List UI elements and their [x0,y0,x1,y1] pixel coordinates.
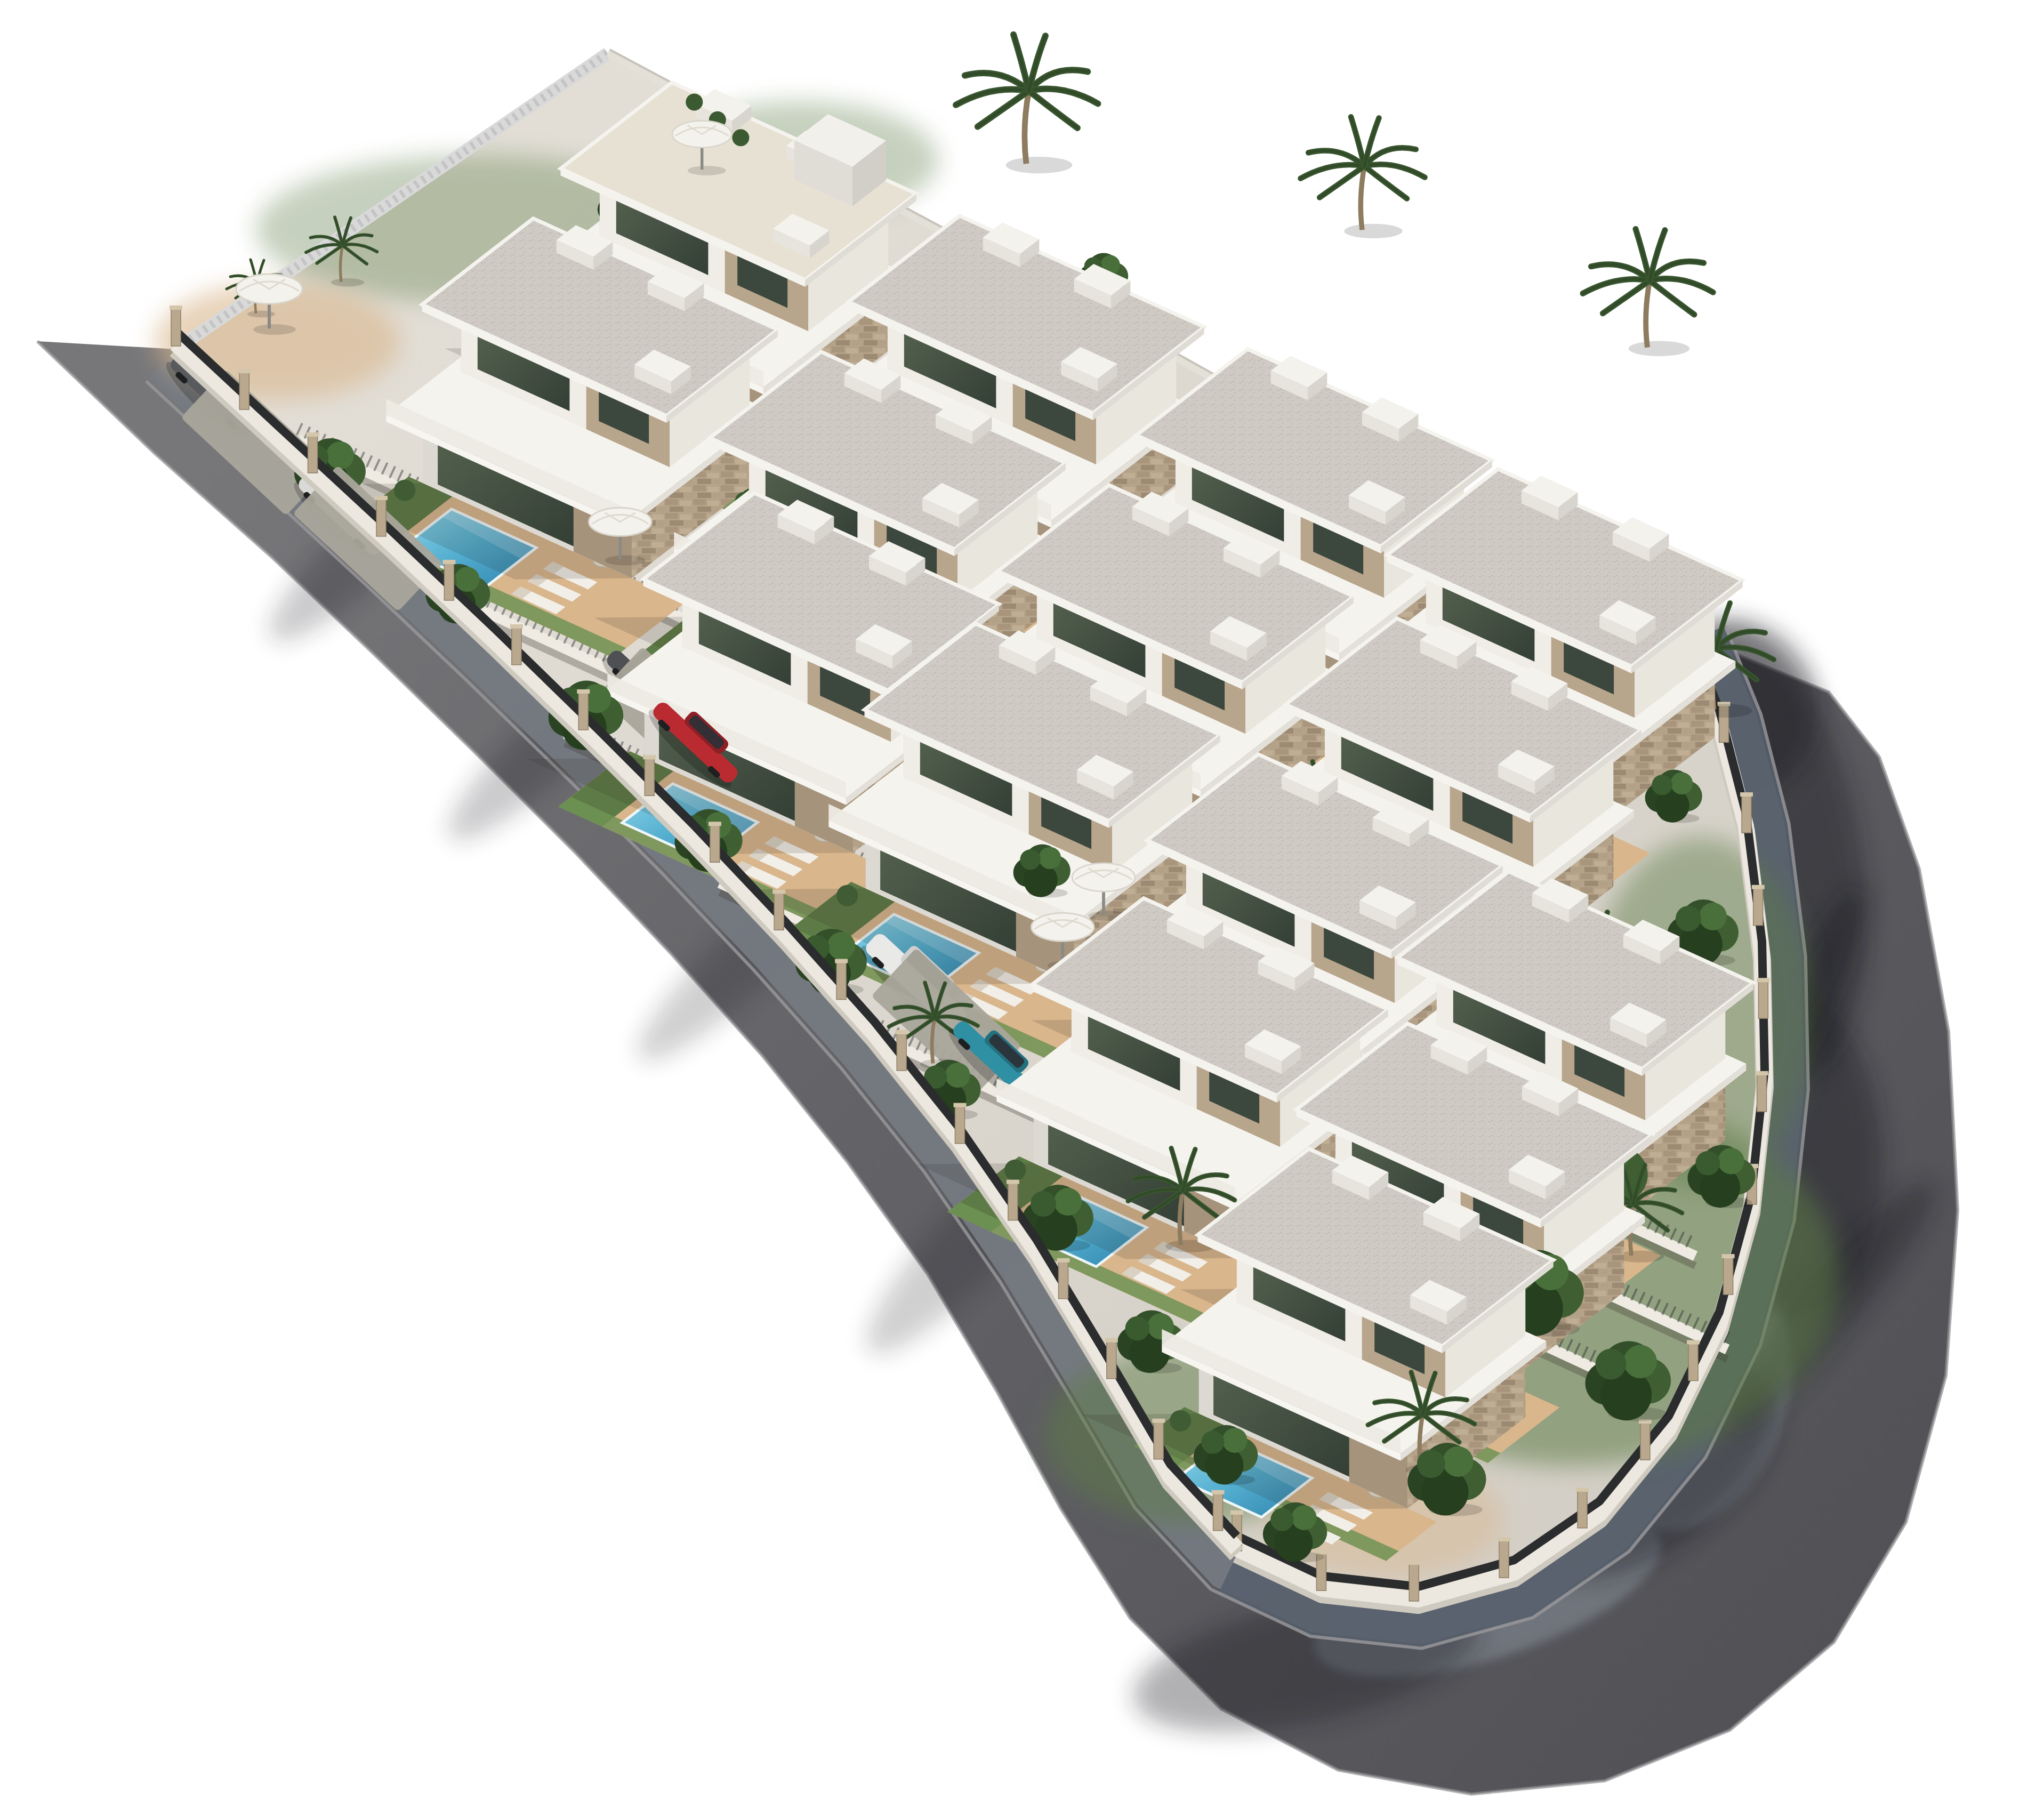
fence-pillar-cap [643,755,656,759]
palm-shadow [1629,341,1689,357]
fence-pillar-cap [1752,885,1765,889]
fence-pillar-cap [1105,1338,1118,1342]
shrub [1170,1410,1191,1432]
tree-canopy [1125,1316,1150,1341]
tree-canopy [1222,1428,1248,1453]
fence-pillar-cap [953,1103,966,1107]
fence-stone-pillar [1213,1493,1223,1531]
fence-stone-pillar [308,436,318,473]
fence-stone-pillar [1409,1564,1419,1601]
tree-canopy [1671,772,1693,794]
roof-plant [686,93,703,110]
fence-pillar-cap [307,432,319,437]
fence-pillar-cap [577,689,590,694]
fence-stone-pillar [1578,1491,1587,1528]
palm-shadow [1344,224,1402,238]
fence-stone-pillar [1757,1074,1767,1112]
fence-pillar-cap [1212,1490,1225,1494]
render-stage: Aerial 3D architectural rendering of a g… [0,0,2044,1801]
fence-pillar-cap [1057,1258,1069,1263]
palm-frond-shade [1603,280,1649,313]
palm-tree [1583,229,1713,356]
fence-stone-pillar [645,758,654,795]
fence-pillar-cap [772,889,785,894]
fence-pillar-cap [835,959,848,963]
palm-trunk [1361,166,1364,230]
palm-tree [1301,117,1425,238]
palm-frond-shade [978,91,1029,126]
fence-stone-pillar [710,825,720,862]
shrub [394,480,415,501]
fence-stone-pillar [774,893,784,930]
tree-canopy [1054,1188,1082,1216]
tree-canopy [1039,847,1061,869]
tree-canopy [1031,1191,1056,1217]
fence-stone-pillar [1758,981,1768,1018]
tree-canopy [1270,1508,1293,1531]
tree-canopy [827,932,855,960]
shrub [836,885,858,906]
fence-pillar-cap [442,560,455,564]
palm-shadow [247,311,275,318]
fence-pillar-cap [1498,1537,1510,1541]
fence-stone-pillar [836,962,846,1000]
fence-stone-pillar [955,1106,964,1144]
fence-pillar-cap [709,822,721,826]
fence-stone-pillar [1008,1183,1018,1220]
fence-pillar-cap [1152,1419,1165,1423]
fence-pillar-cap [1007,1180,1019,1184]
fence-pillar-cap [1756,1071,1768,1075]
fence-stone-pillar [171,309,181,346]
tree-canopy [1443,1446,1473,1477]
fence-stone-pillar [1753,888,1763,926]
fence-pillar-cap [1407,1561,1420,1565]
fence-stone-pillar [1499,1540,1509,1578]
fence-pillar-cap [895,1030,908,1034]
parasol-shadow [253,324,296,335]
fence-stone-pillar [1724,1257,1733,1295]
shrub [1004,1160,1026,1181]
fence-stone-pillar [1640,1422,1650,1460]
tree-canopy [1417,1450,1445,1478]
fence-pillar-cap [170,305,182,310]
tree-canopy [1652,775,1672,795]
tree-canopy [1696,1151,1720,1176]
palm-frond-shade [1364,166,1407,199]
tree-canopy [945,1063,970,1088]
fence-pillar-cap [1740,792,1753,797]
aerial-3d-render: Aerial 3D architectural rendering of a g… [0,0,2044,1801]
tree-canopy [1623,1345,1656,1378]
fence-pillar-cap [238,369,251,373]
fence-stone-pillar [897,1033,906,1071]
fence-stone-pillar [376,499,386,536]
tree-canopy [1020,849,1040,870]
fence-stone-pillar [1688,1344,1698,1381]
palm-frond-shade [1029,91,1077,128]
tree-canopy [455,567,480,592]
fence-pillar-cap [1722,1254,1735,1258]
tree-canopy [1718,1148,1744,1174]
tree-canopy [1699,903,1727,930]
tree-canopy [326,441,354,469]
parasol-shadow [688,166,726,175]
tree-canopy [1292,1505,1317,1530]
fence-stone-pillar [1107,1341,1116,1379]
palm-frond-shade [1649,280,1694,315]
fence-pillar-cap [375,496,388,500]
parasol-shadow [605,556,646,566]
fence-stone-pillar [1058,1261,1068,1299]
tree-canopy [1676,906,1701,931]
palm-shadow [331,278,364,287]
fence-pillar-cap [1230,1510,1243,1515]
fence-pillar-cap [1687,1340,1700,1345]
palm-trunk [1646,280,1649,347]
fence-stone-pillar [512,628,521,665]
fence-stone-pillar [444,563,454,600]
tree-canopy [1596,1349,1627,1380]
palm-tree [956,35,1098,173]
fence-stone-pillar [1154,1422,1163,1459]
roof-plant [732,129,749,146]
palm-frond-shade [1319,166,1364,198]
fence-stone-pillar [578,693,588,730]
fence-stone-pillar [1742,795,1751,833]
tree-canopy [1201,1431,1224,1454]
fence-stone-pillar [239,372,249,409]
palm-trunk [1025,91,1029,164]
fence-pillar-cap [1576,1488,1589,1492]
palm-shadow [1006,157,1073,173]
fence-pillar-cap [1757,978,1769,982]
fence-pillar-cap [510,624,523,629]
